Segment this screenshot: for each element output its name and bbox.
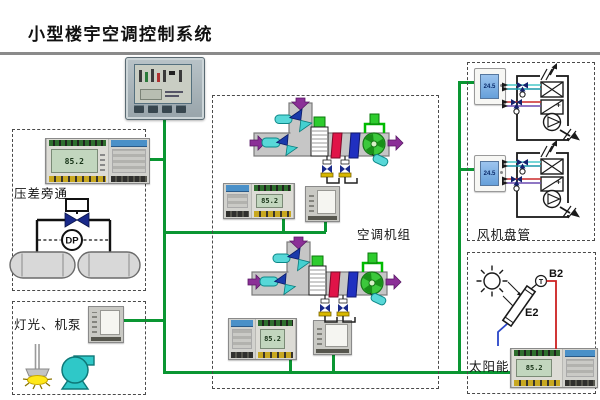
title-divider [0,52,600,55]
lighting-pump-icons [20,340,100,392]
ddc-io-module [109,139,149,183]
terminal-strip [308,216,337,220]
terminal-strip [254,211,291,217]
air-outlet-top [540,140,557,157]
hot-pipe [547,281,557,349]
terminal-strip [231,352,253,358]
coil-section [541,177,563,191]
sensor-link-line [531,284,537,289]
pressure-bypass-diagram: DP [10,196,145,290]
io-label-strip [226,185,249,192]
heating-coil-icon [331,133,342,158]
temp-sensor-icon: T [536,276,547,287]
ahu-diagram-2 [247,236,402,328]
solar-diagram: T B2 E2 [467,252,594,392]
terminal-strip [49,176,106,182]
io-terminals [227,194,248,208]
cold-pipe [498,324,507,346]
module-screen [100,310,120,335]
water-header-tanks [10,252,140,278]
lcd-display: 85.2 [260,329,285,349]
sun-icon [477,266,508,297]
io-indicator-leds [309,192,314,212]
temp-sensor-label: T [539,279,544,286]
three-way-valve-icon [517,82,528,92]
bus-line-right-vertical [458,81,461,372]
bus-line-main-vertical [163,117,166,374]
heating-coil-icon [329,272,340,297]
dp-sensor-icon: DP [62,230,82,250]
fcu-fan-icon [544,114,561,131]
cooling-coil-icon [349,133,360,158]
io-terminals [232,329,252,349]
sensor-b2-label: B2 [549,268,563,280]
ddc-lcd-module: 85.2 [251,184,294,218]
ddc-controller-bypass: 85.2 [45,138,150,184]
filter-icon [309,256,326,295]
filter-icon [311,117,328,156]
ddc-lcd-module: 85.2 [46,139,109,183]
terminal-strip [49,140,106,146]
fcu-fan-icon [544,191,561,208]
diagram-canvas: 小型楼宇空调控制系统 [0,0,600,400]
module-screen [317,190,336,214]
supply-fan-icon [363,114,389,167]
valve-actuator [514,186,519,191]
air-outlet-top [540,63,557,80]
lcd-display: 85.2 [256,194,283,208]
io-terminals [112,149,146,173]
hmi-screen [134,64,192,104]
fan-coil-label: 风机盘管 [477,224,531,243]
thermostat-display: 24.5 [480,74,499,99]
io-label-strip [111,140,147,147]
lamp-icon [23,344,52,389]
terminal-strip [111,176,147,182]
control-valve-icon [321,156,357,183]
fan-coil-unit-1 [500,62,582,142]
control-valve-icon [319,295,355,322]
supply-fan-icon [361,253,387,306]
ddc-io-module [224,184,251,218]
io-indicator-leds [317,326,322,345]
io-indicator-leds [92,312,97,333]
lighting-pump-module [88,306,124,343]
dp-sensor-label: DP [65,236,79,247]
lighting-pumps-label: 灯光、机泵 [14,314,82,333]
air-outlet-bottom [560,203,580,218]
three-way-valve-icon [517,159,528,169]
bypass-valve-icon [65,199,89,227]
cooling-coil-icon [347,272,358,297]
fan-coil-unit-2 [500,139,582,219]
ahu-diagram-1 [249,97,404,189]
page-title: 小型楼宇空调控制系统 [28,20,213,45]
terminal-strip [258,352,293,358]
pump-icon [62,356,94,389]
hmi-function-keys [134,105,196,114]
io-extension-module [305,186,340,222]
collector-e2-label: E2 [525,307,538,319]
coil-section [541,100,563,114]
valve-actuator [520,169,525,174]
solar-collector-icon [503,286,535,326]
terminal-strip [316,349,349,353]
terminal-strip [226,211,249,217]
valve-actuator [514,109,519,114]
hmi-touch-panel [125,57,205,120]
lcd-display: 85.2 [51,149,98,173]
filter-section [541,82,563,97]
thermostat-display: 24.5 [480,161,499,186]
valve-actuator [520,92,525,97]
filter-section [541,159,563,174]
button-column [100,151,105,171]
